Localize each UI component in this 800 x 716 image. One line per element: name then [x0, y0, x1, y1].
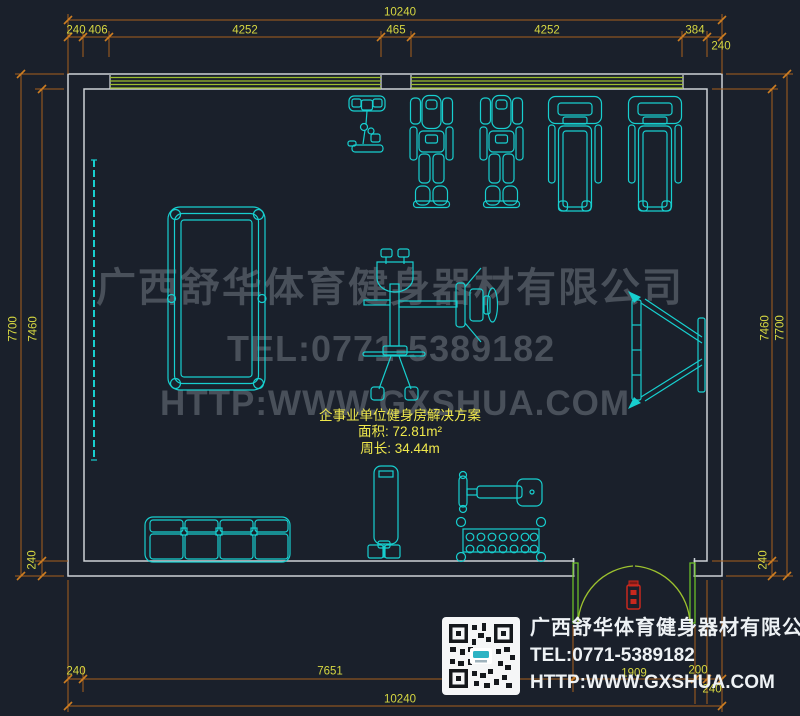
dim-top-465: 465	[386, 25, 405, 37]
dim-top-406: 406	[88, 25, 107, 37]
room-label-title: 企事业单位健身房解决方案	[250, 409, 550, 423]
dimension-labels: 10240 240 406 4252 465 4252 384 240 7700…	[0, 0, 800, 716]
dim-left-7700: 7700	[8, 316, 20, 342]
cad-floor-plan: 广西舒华体育健身器材有限公司 TEL:0771-5389182 HTTP:WWW…	[0, 0, 800, 716]
dim-top-total: 10240	[384, 7, 416, 19]
dim-top-384: 384	[685, 25, 704, 37]
footer-company: 广西舒华体育健身器材有限公司	[530, 618, 800, 638]
room-label-perimeter: 周长: 34.44m	[250, 442, 550, 456]
footer-tel: TEL:0771-5389182	[530, 646, 800, 665]
dim-bottom-total: 10240	[384, 694, 416, 706]
footer-company-block: 广西舒华体育健身器材有限公司 TEL:0771-5389182 HTTP:WWW…	[530, 618, 800, 692]
room-label: 企事业单位健身房解决方案 面积: 72.81m² 周长: 34.44m	[250, 409, 550, 458]
dim-right-240: 240	[758, 550, 770, 569]
dim-bottom-7651: 7651	[317, 666, 343, 678]
dim-right-7460: 7460	[760, 315, 772, 341]
dim-top-4252-right: 4252	[534, 25, 560, 37]
dim-top-right-240: 240	[711, 41, 730, 53]
room-label-area: 面积: 72.81m²	[250, 425, 550, 439]
dim-top-4252-left: 4252	[232, 25, 258, 37]
dim-right-7700: 7700	[775, 315, 787, 341]
footer-url: HTTP:WWW.GXSHUA.COM	[530, 673, 800, 692]
dim-top-240: 240	[66, 25, 85, 37]
dim-left-7460: 7460	[28, 316, 40, 342]
dim-bottom-240: 240	[66, 666, 85, 678]
dim-left-240: 240	[27, 550, 39, 569]
